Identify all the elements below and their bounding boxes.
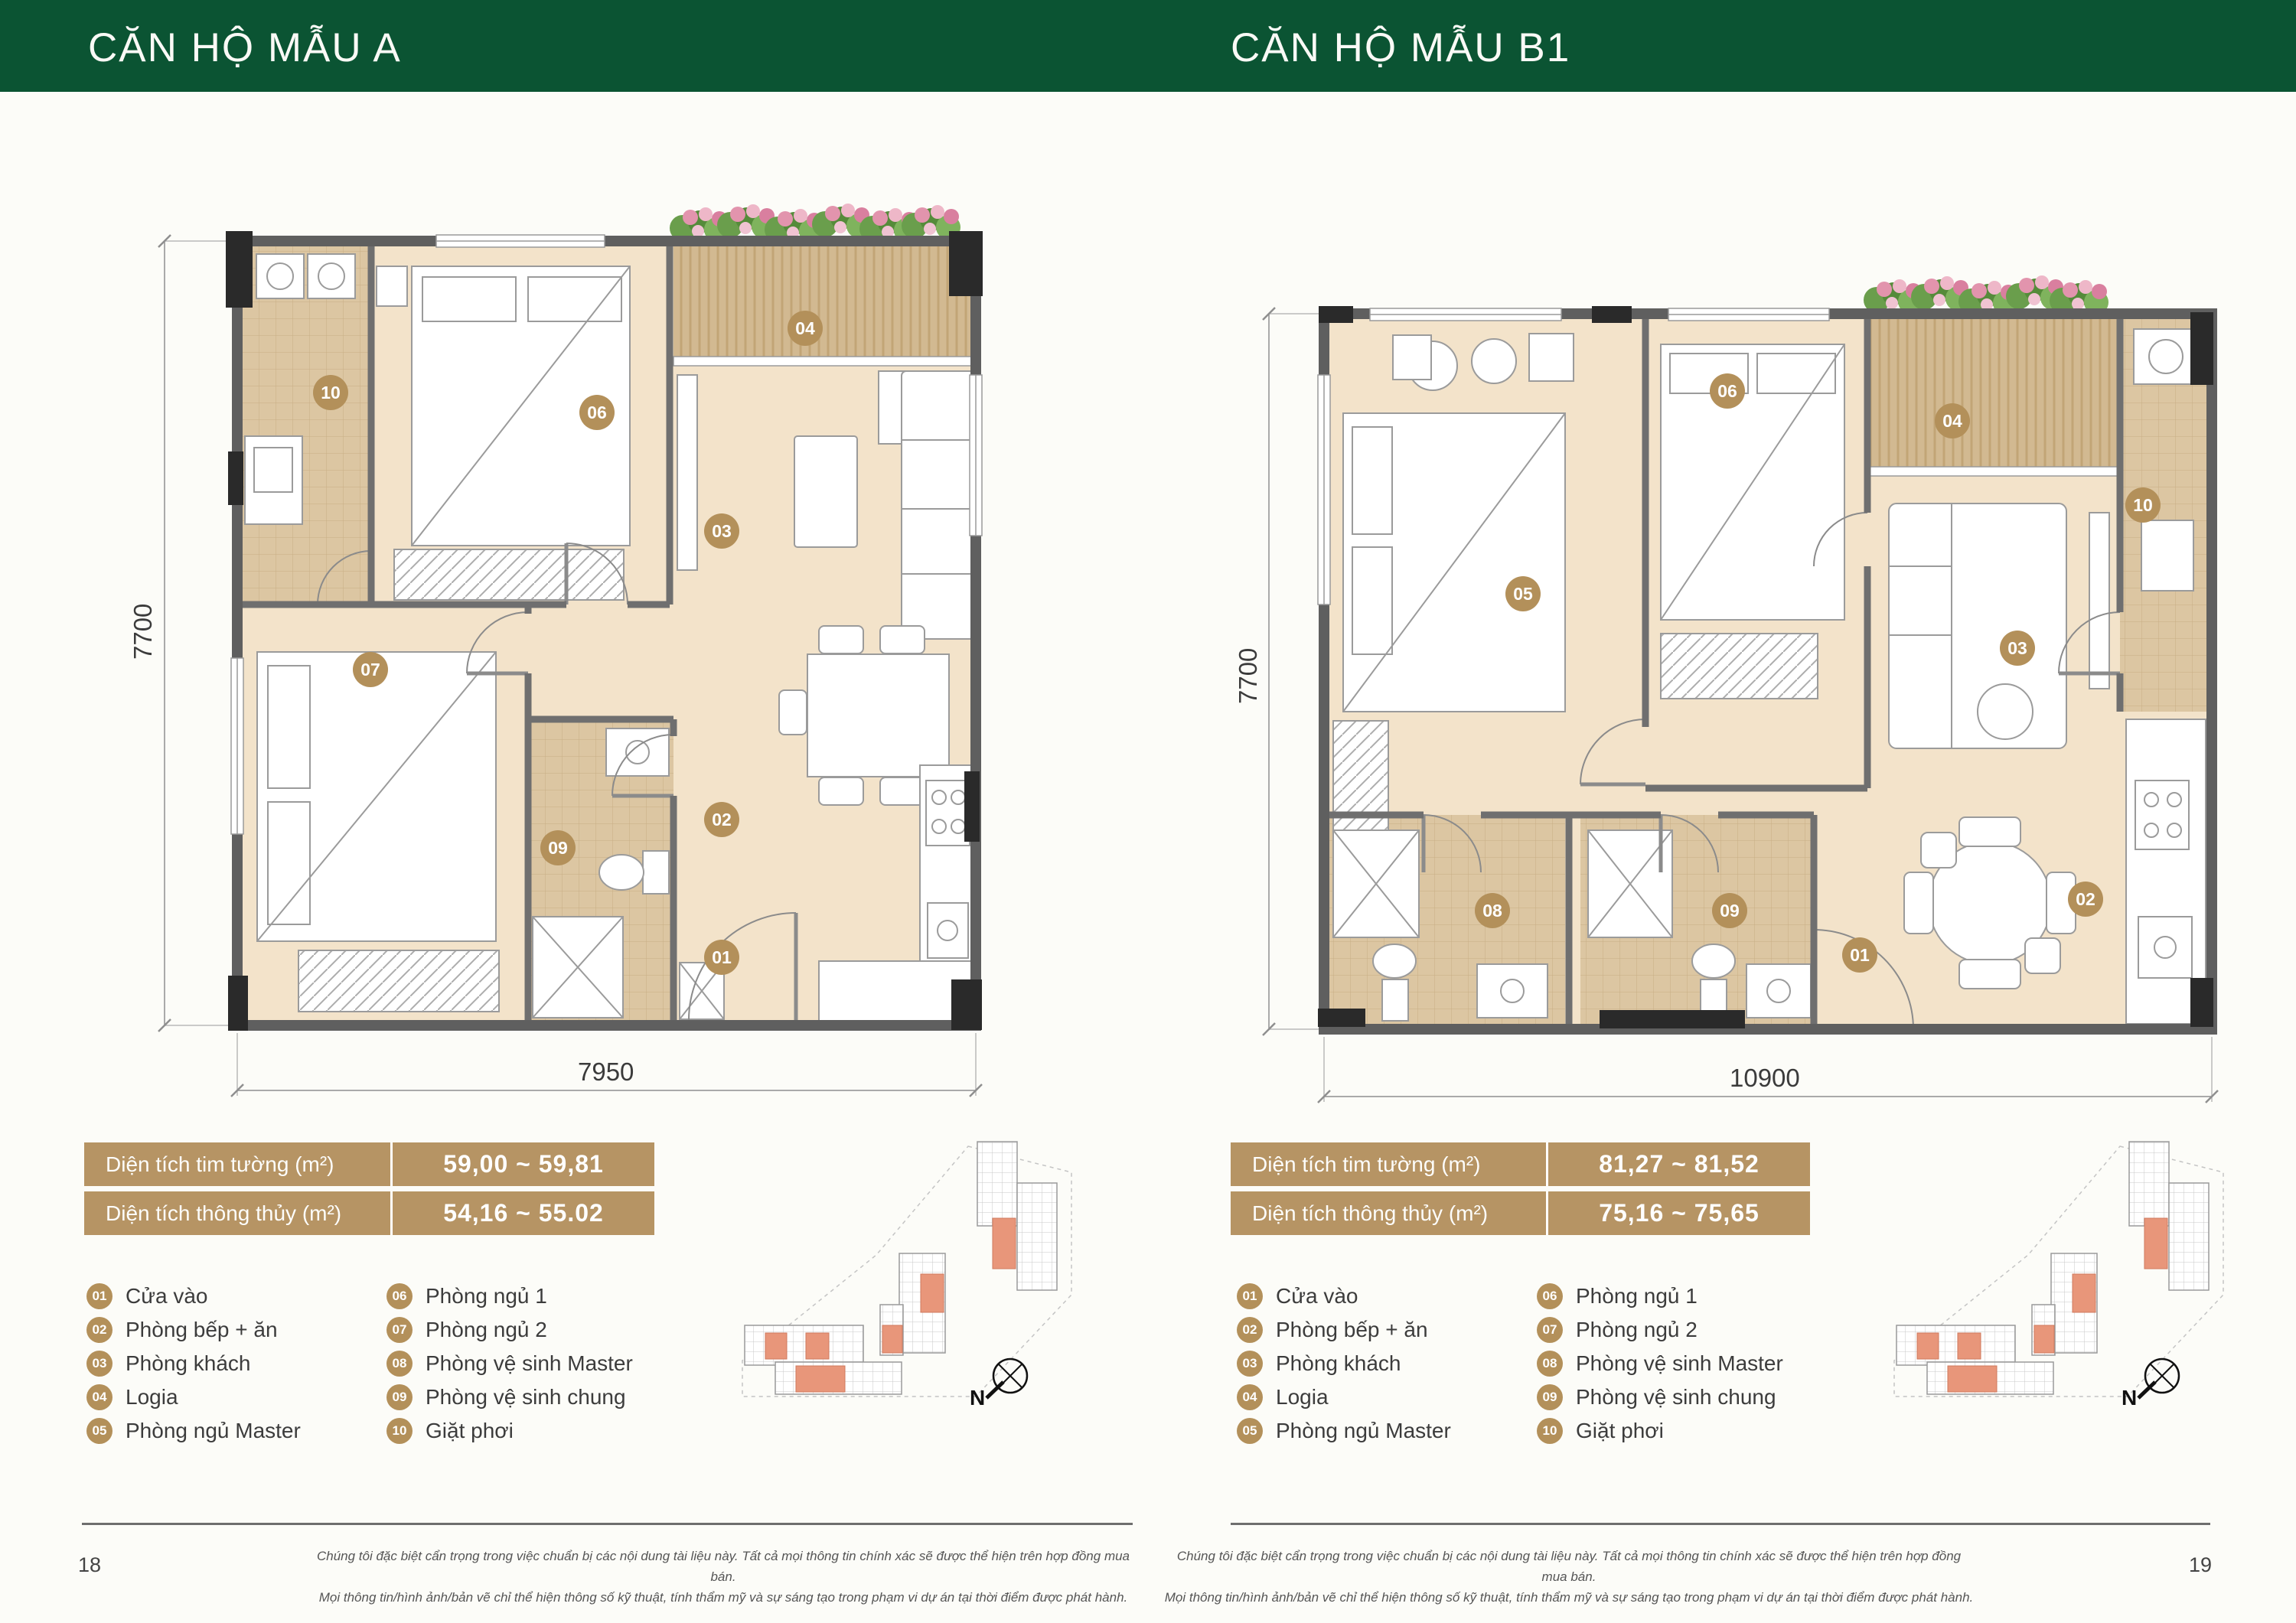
room-marker: 01 [704, 940, 739, 975]
keyplan-b1: N [1875, 1133, 2242, 1484]
legend-b1-col1: 01 Cửa vào 02 Phòng bếp + ăn 03 Phòng kh… [1237, 1279, 1451, 1448]
plan-b1-width-dimension: 10900 [1730, 1064, 1800, 1092]
legend-label: Giặt phơi [426, 1419, 514, 1443]
svg-text:05: 05 [1513, 584, 1533, 604]
area-label: Diện tích tim tường (m²) [1231, 1142, 1548, 1186]
legend-b1-col2: 06 Phòng ngủ 1 07 Phòng ngủ 2 08 Phòng v… [1537, 1279, 1783, 1448]
plan-a-width-dimension: 7950 [578, 1058, 634, 1086]
area-label: Diện tích thông thủy (m²) [84, 1191, 393, 1235]
legend-label: Logia [1276, 1385, 1329, 1410]
legend-label: Phòng khách [1276, 1351, 1401, 1376]
page-number-right: 19 [2189, 1553, 2212, 1577]
area-value: 54,16 ~ 55.02 [393, 1191, 654, 1235]
room-marker: 06 [1710, 373, 1745, 409]
svg-text:01: 01 [712, 947, 732, 967]
legend-badge: 08 [386, 1351, 413, 1377]
disclaimer-left: Chúng tôi đặc biệt cẩn trọng trong việc … [306, 1546, 1140, 1608]
compass-icon: N [2122, 1359, 2179, 1410]
svg-text:08: 08 [1482, 901, 1502, 921]
svg-text:10: 10 [321, 383, 341, 402]
legend-item: 08 Phòng vệ sinh Master [386, 1347, 633, 1380]
area-table-a: Diện tích tim tường (m²) 59,00 ~ 59,81 D… [84, 1142, 654, 1240]
room-marker: 07 [353, 652, 388, 687]
room-marker: 04 [788, 311, 823, 346]
svg-text:09: 09 [548, 838, 568, 858]
legend-label: Phòng ngủ 2 [426, 1318, 547, 1342]
legend-item: 05 Phòng ngủ Master [1237, 1414, 1451, 1448]
legend-label: Phòng bếp + ăn [1276, 1318, 1428, 1342]
area-value: 59,00 ~ 59,81 [393, 1142, 654, 1186]
svg-text:10: 10 [2133, 495, 2153, 515]
svg-text:06: 06 [587, 402, 607, 422]
legend-label: Phòng vệ sinh Master [426, 1351, 633, 1376]
legend-badge: 10 [386, 1418, 413, 1444]
legend-label: Giặt phơi [1576, 1419, 1664, 1443]
compass-north-label: N [2122, 1386, 2137, 1410]
legend-label: Phòng bếp + ăn [126, 1318, 278, 1342]
legend-item: 02 Phòng bếp + ăn [86, 1313, 301, 1347]
legend-item: 09 Phòng vệ sinh chung [1537, 1380, 1783, 1414]
legend-badge: 04 [86, 1384, 113, 1410]
legend-item: 07 Phòng ngủ 2 [386, 1313, 633, 1347]
legend-item: 04 Logia [1237, 1380, 1451, 1414]
compass-icon: N [970, 1359, 1027, 1410]
area-value: 81,27 ~ 81,52 [1548, 1142, 1810, 1186]
legend-badge: 05 [1237, 1418, 1263, 1444]
legend-item: 07 Phòng ngủ 2 [1537, 1313, 1783, 1347]
legend-label: Phòng vệ sinh chung [426, 1385, 626, 1410]
legend-badge: 02 [1237, 1317, 1263, 1343]
room-marker: 10 [313, 375, 348, 410]
room-marker: 04 [1935, 403, 1970, 438]
legend-label: Cửa vào [1276, 1284, 1358, 1309]
legend-item: 06 Phòng ngủ 1 [1537, 1279, 1783, 1313]
svg-text:02: 02 [2076, 889, 2095, 909]
disclaimer-line2: Mọi thông tin/hình ảnh/bản vẽ chỉ thể hi… [1163, 1587, 1975, 1608]
table-row: Diện tích thông thủy (m²) 75,16 ~ 75,65 [1231, 1191, 1810, 1235]
keyplan-a: N [723, 1133, 1091, 1484]
disclaimer-right: Chúng tôi đặc biệt cẩn trọng trong việc … [1163, 1546, 1975, 1608]
legend-item: 10 Giặt phơi [1537, 1414, 1783, 1448]
legend-label: Phòng vệ sinh Master [1576, 1351, 1783, 1376]
legend-badge: 07 [1537, 1317, 1563, 1343]
legend-label: Phòng khách [126, 1351, 250, 1376]
plan-a-height-dimension: 7700 [129, 604, 157, 660]
legend-item: 01 Cửa vào [1237, 1279, 1451, 1313]
legend-badge: 10 [1537, 1418, 1563, 1444]
legend-badge: 06 [386, 1283, 413, 1309]
legend-badge: 02 [86, 1317, 113, 1343]
table-row: Diện tích tim tường (m²) 81,27 ~ 81,52 [1231, 1142, 1810, 1186]
legend-item: 05 Phòng ngủ Master [86, 1414, 301, 1448]
legend-label: Phòng ngủ Master [126, 1419, 301, 1443]
footer-divider-left [82, 1523, 1133, 1525]
legend-badge: 03 [1237, 1351, 1263, 1377]
room-marker: 10 [2125, 487, 2161, 523]
floor-plan-b1: 7700 10900 [1232, 184, 2265, 1148]
legend-item: 02 Phòng bếp + ăn [1237, 1313, 1451, 1347]
svg-text:04: 04 [795, 318, 815, 338]
legend-badge: 07 [386, 1317, 413, 1343]
table-row: Diện tích thông thủy (m²) 54,16 ~ 55.02 [84, 1191, 654, 1235]
room-marker: 03 [2000, 631, 2035, 666]
legend-badge: 01 [1237, 1283, 1263, 1309]
logia-deck [1867, 318, 2120, 476]
room-marker: 01 [1842, 937, 1877, 973]
room-marker: 06 [579, 395, 615, 430]
area-table-b1: Diện tích tim tường (m²) 81,27 ~ 81,52 D… [1231, 1142, 1810, 1240]
svg-text:03: 03 [712, 521, 732, 541]
legend-badge: 05 [86, 1418, 113, 1444]
legend-a-col2: 06 Phòng ngủ 1 07 Phòng ngủ 2 08 Phòng v… [386, 1279, 633, 1448]
floor-plan-a: 7700 7950 [107, 184, 1094, 1125]
legend-badge: 09 [1537, 1384, 1563, 1410]
svg-text:03: 03 [2007, 638, 2027, 658]
svg-text:01: 01 [1850, 945, 1870, 965]
legend-item: 06 Phòng ngủ 1 [386, 1279, 633, 1313]
page-title-b1: CĂN HỘ MẪU B1 [1231, 24, 1570, 71]
legend-badge: 06 [1537, 1283, 1563, 1309]
plan-b1-height-dimension: 7700 [1234, 648, 1262, 704]
svg-text:09: 09 [1720, 901, 1740, 921]
svg-text:04: 04 [1942, 411, 1962, 431]
header-bar: CĂN HỘ MẪU A CĂN HỘ MẪU B1 [0, 0, 2296, 92]
legend-label: Phòng ngủ 1 [426, 1284, 547, 1309]
legend-label: Phòng ngủ 1 [1576, 1284, 1698, 1309]
room-marker: 09 [540, 830, 576, 865]
legend-item: 08 Phòng vệ sinh Master [1537, 1347, 1783, 1380]
table-row: Diện tích tim tường (m²) 59,00 ~ 59,81 [84, 1142, 654, 1186]
room-marker: 08 [1475, 893, 1510, 928]
legend-badge: 04 [1237, 1384, 1263, 1410]
footer-divider-right [1231, 1523, 2210, 1525]
legend-label: Phòng ngủ 2 [1576, 1318, 1698, 1342]
compass-north-label: N [970, 1386, 985, 1410]
room-marker: 05 [1505, 576, 1541, 611]
disclaimer-line1: Chúng tôi đặc biệt cẩn trọng trong việc … [306, 1546, 1140, 1587]
page-title-a: CĂN HỘ MẪU A [88, 24, 402, 71]
svg-text:02: 02 [712, 810, 732, 829]
area-value: 75,16 ~ 75,65 [1548, 1191, 1810, 1235]
room-marker: 02 [704, 802, 739, 837]
room-marker: 02 [2068, 882, 2103, 917]
legend-label: Phòng vệ sinh chung [1576, 1385, 1776, 1410]
legend-item: 03 Phòng khách [86, 1347, 301, 1380]
room-marker: 09 [1712, 893, 1747, 928]
legend-badge: 09 [386, 1384, 413, 1410]
legend-label: Logia [126, 1385, 178, 1410]
svg-text:07: 07 [360, 660, 380, 680]
disclaimer-line2: Mọi thông tin/hình ảnh/bản vẽ chỉ thể hi… [306, 1587, 1140, 1608]
area-label: Diện tích tim tường (m²) [84, 1142, 393, 1186]
area-label: Diện tích thông thủy (m²) [1231, 1191, 1548, 1235]
legend-a-col1: 01 Cửa vào 02 Phòng bếp + ăn 03 Phòng kh… [86, 1279, 301, 1448]
disclaimer-line1: Chúng tôi đặc biệt cẩn trọng trong việc … [1163, 1546, 1975, 1587]
page-number-left: 18 [78, 1553, 101, 1577]
legend-item: 04 Logia [86, 1380, 301, 1414]
legend-item: 09 Phòng vệ sinh chung [386, 1380, 633, 1414]
legend-badge: 03 [86, 1351, 113, 1377]
legend-item: 03 Phòng khách [1237, 1347, 1451, 1380]
legend-label: Phòng ngủ Master [1276, 1419, 1451, 1443]
legend-label: Cửa vào [126, 1284, 207, 1309]
legend-item: 01 Cửa vào [86, 1279, 301, 1313]
logia-deck [673, 245, 976, 366]
room-marker: 03 [704, 513, 739, 549]
legend-badge: 01 [86, 1283, 113, 1309]
svg-text:06: 06 [1717, 381, 1737, 401]
legend-badge: 08 [1537, 1351, 1563, 1377]
legend-item: 10 Giặt phơi [386, 1414, 633, 1448]
